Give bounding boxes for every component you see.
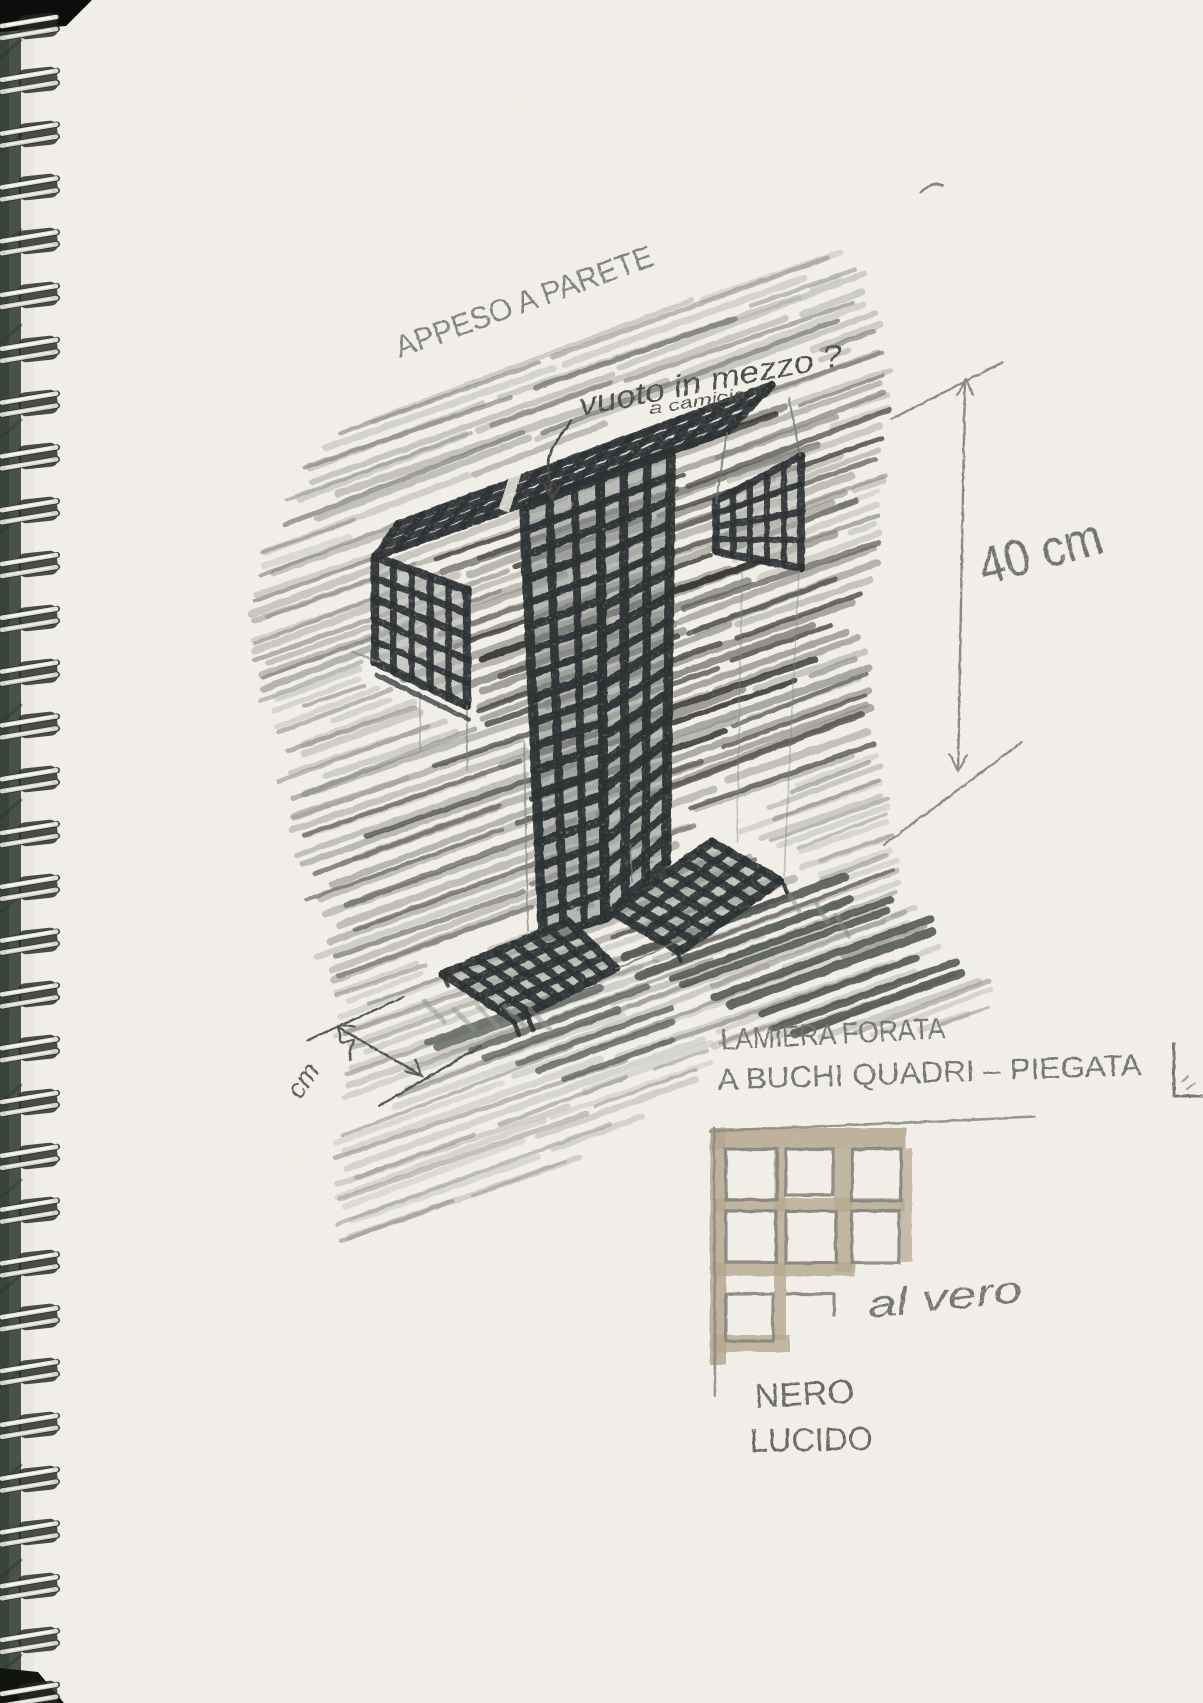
svg-text:NERO: NERO [753,1373,855,1416]
svg-text:LUCIDO: LUCIDO [749,1420,873,1459]
